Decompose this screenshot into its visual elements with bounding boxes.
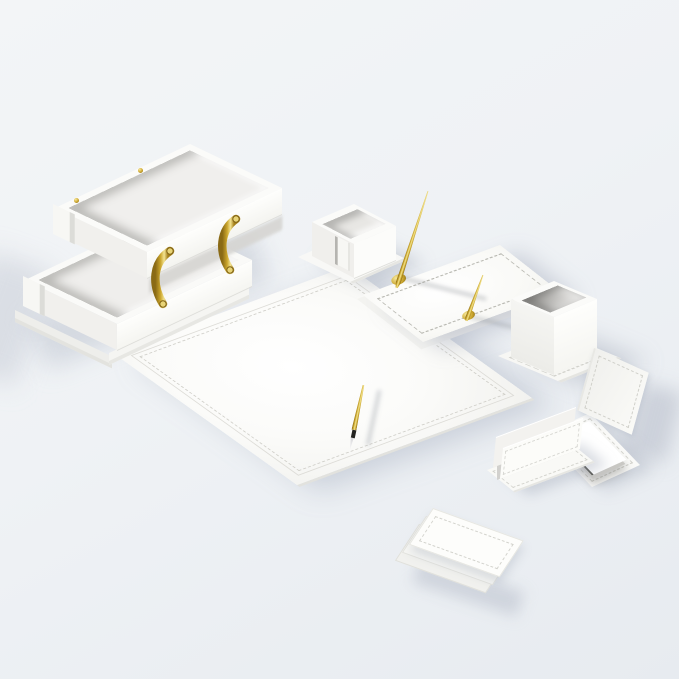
- tray-gold-handle-right: [214, 214, 248, 276]
- tray-screw: [138, 168, 143, 173]
- memo-box-divider: [338, 237, 349, 271]
- tray-gold-handle-left: [146, 246, 182, 310]
- note-holder-backrest-stitch: [584, 355, 643, 428]
- product-photo-desk-set: [0, 0, 679, 679]
- tray-screw: [74, 198, 79, 203]
